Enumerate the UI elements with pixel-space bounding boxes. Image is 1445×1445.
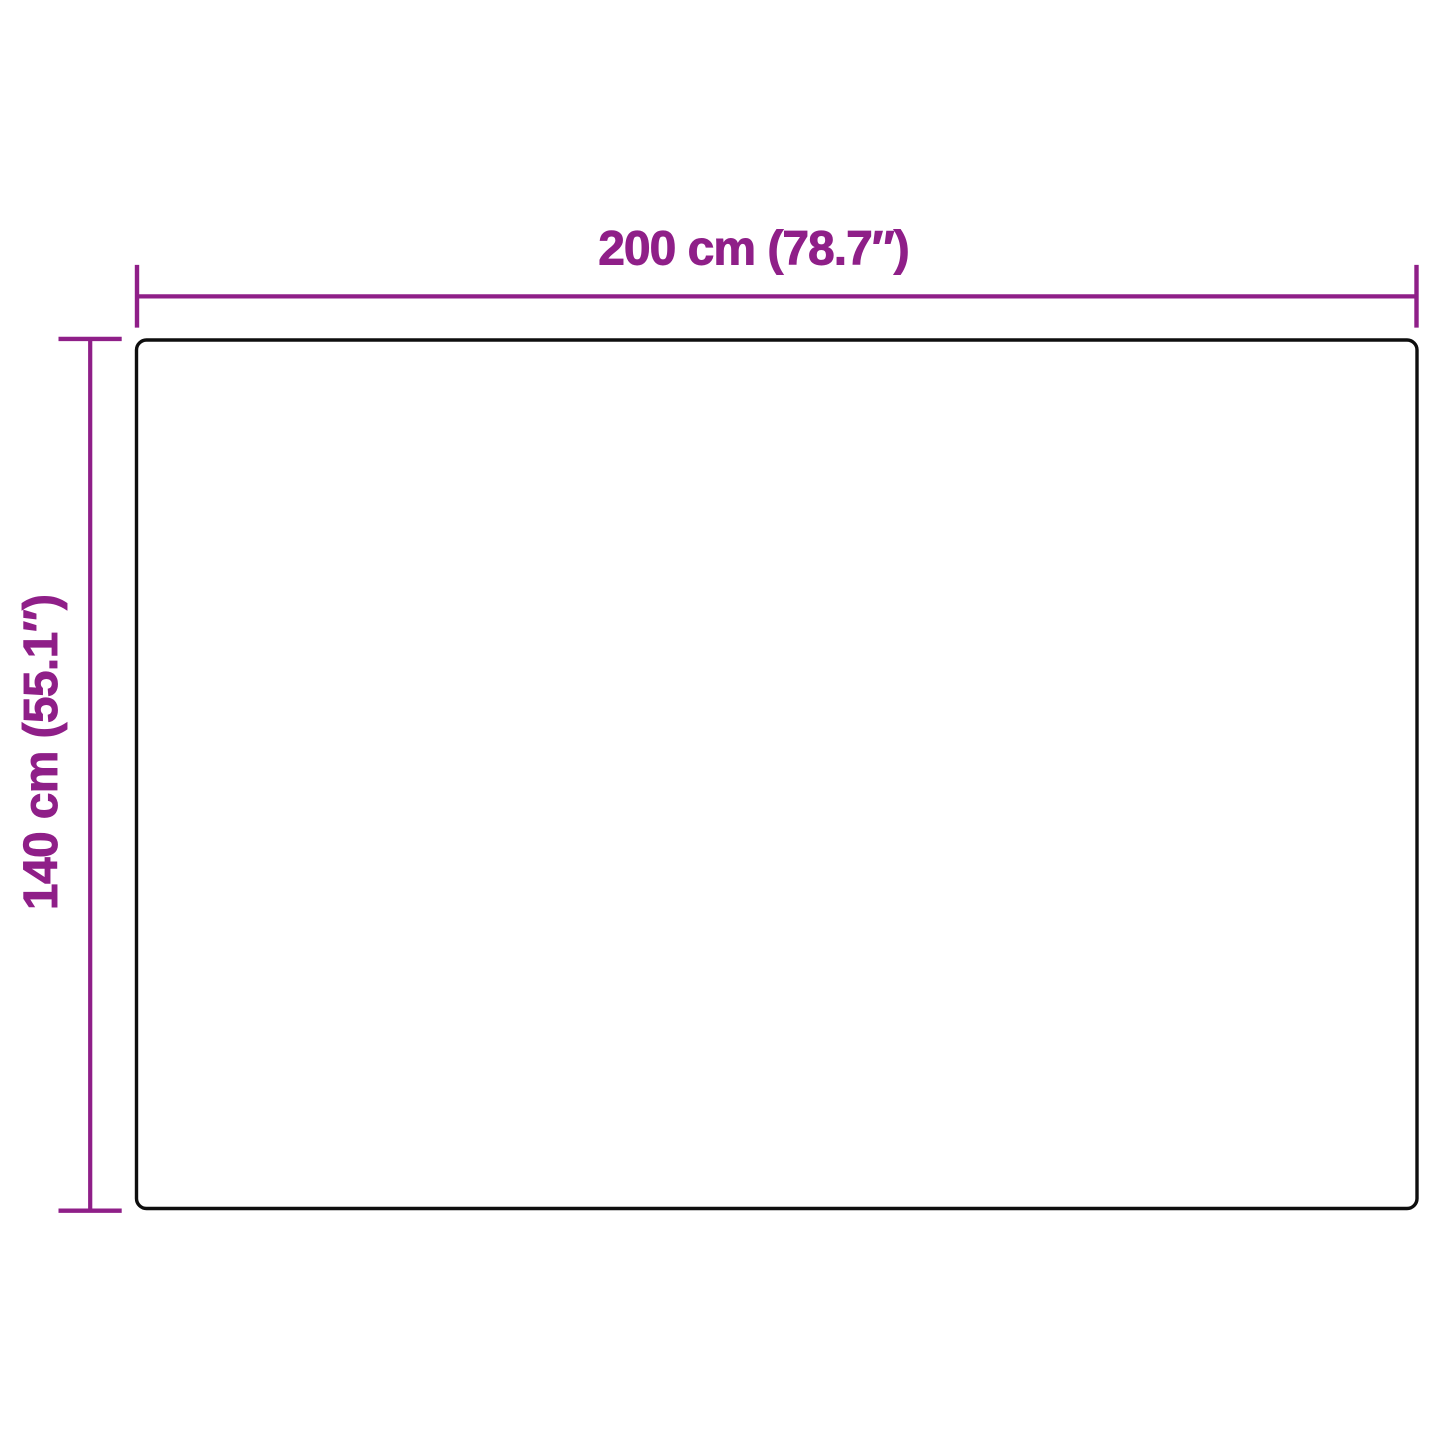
svg-text:200 cm (78.7″): 200 cm (78.7″): [598, 223, 909, 276]
svg-text:140 cm (55.1″): 140 cm (55.1″): [15, 595, 68, 910]
